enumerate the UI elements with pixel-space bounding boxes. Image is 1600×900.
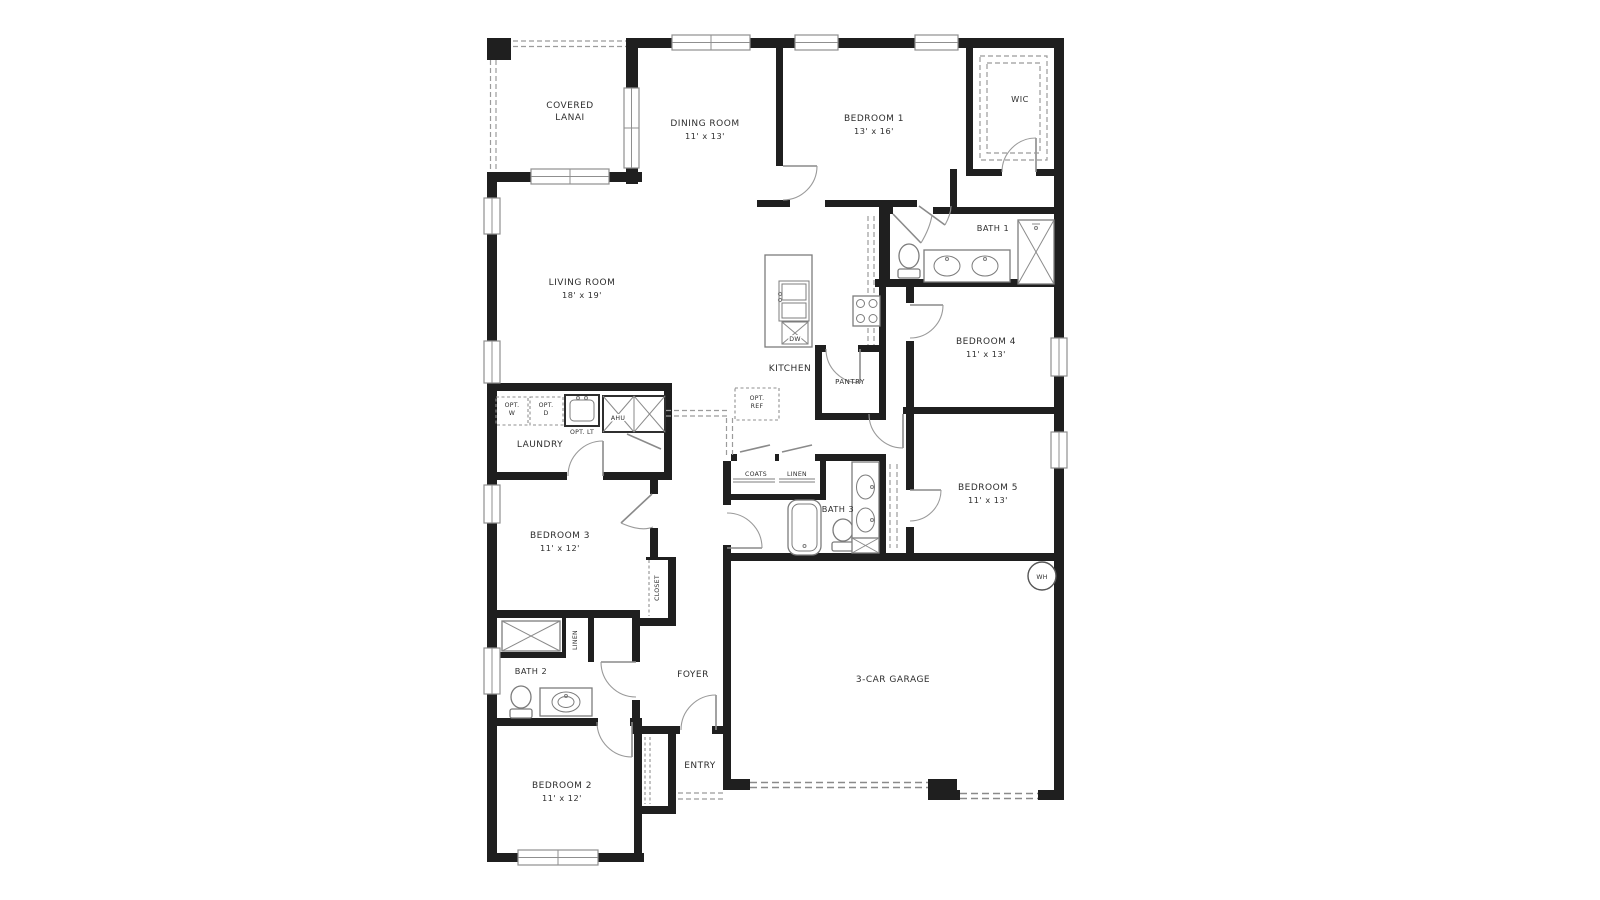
window xyxy=(531,169,609,184)
laundry-door xyxy=(568,441,603,476)
window xyxy=(672,35,750,50)
entry-label: ENTRY xyxy=(684,761,716,771)
wic-shelving xyxy=(980,56,1047,160)
bath1-label: BATH 1 xyxy=(977,223,1010,233)
bath2-label: BATH 2 xyxy=(515,666,548,676)
wic-label: WIC xyxy=(1011,94,1029,104)
opt-w-label2: W xyxy=(509,410,515,417)
window xyxy=(484,198,500,234)
ahu-door xyxy=(627,434,661,449)
exterior-walls xyxy=(487,38,1064,862)
window xyxy=(795,35,838,50)
coats-shelf xyxy=(733,479,775,482)
front-door xyxy=(681,695,716,730)
bedroom1-door xyxy=(783,166,817,200)
coats-label: COATS xyxy=(745,471,767,478)
bedroom2-label: BEDROOM 2 xyxy=(532,781,592,791)
covered-lanai-label: COVERED xyxy=(546,101,593,111)
bath3-tub xyxy=(788,500,821,555)
floorplan-page: COVERED LANAI DINING ROOM 11' x 13' BEDR… xyxy=(0,0,1600,900)
bath2-shower xyxy=(502,621,560,651)
range-icon xyxy=(853,296,880,326)
bath2-vanity xyxy=(540,688,592,716)
window xyxy=(484,341,500,383)
bedroom4-label: BEDROOM 4 xyxy=(956,337,1016,347)
garage-label: 3-CAR GARAGE xyxy=(856,675,930,685)
bath1-vanity xyxy=(924,250,1010,282)
doors xyxy=(568,138,1036,757)
sliding-door-window xyxy=(624,88,639,168)
bedroom3-door xyxy=(621,494,653,529)
bath1-door xyxy=(893,214,932,243)
bath3-label: BATH 3 xyxy=(822,504,855,514)
linen-hall-label: LINEN xyxy=(787,471,807,478)
window xyxy=(1051,338,1067,376)
dining-room-dims: 11' x 13' xyxy=(685,131,725,141)
ahu-closet xyxy=(603,396,665,432)
foyer-label: FOYER xyxy=(677,670,709,680)
linen-bath2-label: LINEN xyxy=(572,630,579,650)
linen-shelf xyxy=(779,479,815,482)
bedroom1-label: BEDROOM 1 xyxy=(844,114,904,124)
pantry-label: PANTRY xyxy=(835,378,865,386)
opt-d-label: OPT. xyxy=(539,402,554,409)
floor-plan-svg: COVERED LANAI DINING ROOM 11' x 13' BEDR… xyxy=(0,0,1600,900)
bedroom3-dims: 11' x 12' xyxy=(540,543,580,553)
bedroom1-dims: 13' x 16' xyxy=(854,126,894,136)
water-heater-label: WH xyxy=(1036,574,1047,581)
bath2-toilet-icon xyxy=(510,686,532,718)
laundry-tub xyxy=(565,395,599,426)
bedroom5-label: BEDROOM 5 xyxy=(958,483,1018,493)
windows xyxy=(484,35,1067,865)
opt-ref-label: OPT. xyxy=(750,395,765,402)
coats-door xyxy=(740,445,770,452)
window xyxy=(484,485,500,523)
linen-hall-door xyxy=(782,445,812,452)
kitchen-island xyxy=(765,255,812,347)
ahu-label: AHU xyxy=(611,415,625,422)
window xyxy=(915,35,958,50)
laundry-label: LAUNDRY xyxy=(517,440,563,450)
bath3-vanity xyxy=(852,462,879,540)
dining-room-label: DINING ROOM xyxy=(670,119,739,129)
bedroom4-door xyxy=(910,305,943,338)
kitchen-label: KITCHEN xyxy=(769,364,812,374)
bedroom2-door xyxy=(597,722,632,757)
bath2-door xyxy=(601,662,636,697)
opt-lt-label: OPT. LT xyxy=(570,429,594,436)
dishwasher-label: DW xyxy=(789,336,800,343)
bath1-toilet-icon xyxy=(898,244,920,278)
opt-d-label2: D xyxy=(543,410,548,417)
bath1-shower xyxy=(1018,220,1054,284)
living-room-label: LIVING ROOM xyxy=(549,278,616,288)
window xyxy=(484,648,500,694)
covered-lanai-label2: LANAI xyxy=(555,113,584,123)
bedroom5-dims: 11' x 13' xyxy=(968,495,1008,505)
bedroom3-closet-label: CLOSET xyxy=(654,575,661,601)
bedroom3-label: BEDROOM 3 xyxy=(530,531,590,541)
living-room-dims: 18' x 19' xyxy=(562,290,602,300)
wic-door xyxy=(1002,138,1036,172)
window xyxy=(1051,432,1067,468)
bath3-linen-box xyxy=(852,538,879,553)
opt-ref-label2: REF xyxy=(751,403,764,410)
bedroom5-door xyxy=(910,490,941,521)
bedroom4-dims: 11' x 13' xyxy=(966,349,1006,359)
window xyxy=(518,850,598,865)
bedroom2-dims: 11' x 12' xyxy=(542,793,582,803)
bath3-door xyxy=(727,513,762,548)
opt-w-label: OPT. xyxy=(505,402,520,409)
bath3-toilet-icon xyxy=(832,519,854,551)
